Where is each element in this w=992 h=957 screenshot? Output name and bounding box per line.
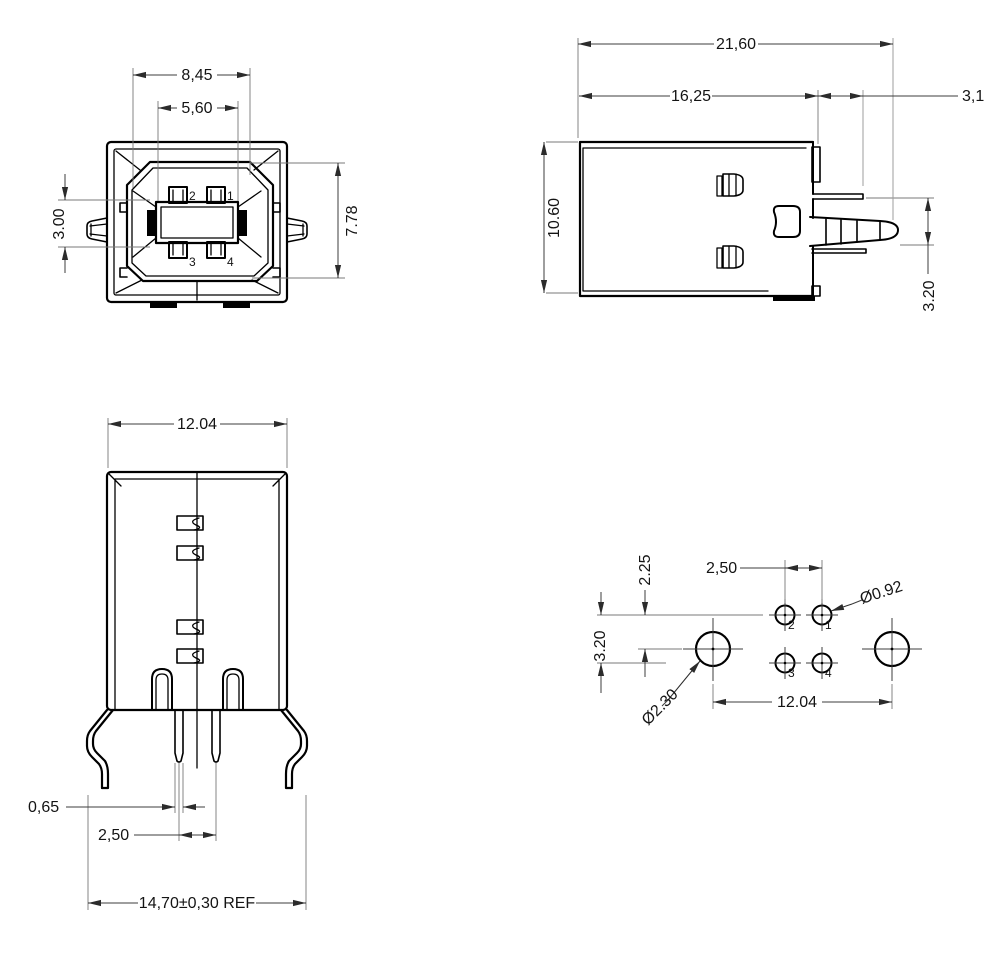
footprint-pin-label-2: 2 <box>788 618 795 632</box>
pin-hole-2 <box>769 599 801 631</box>
dim-front-shroud-height: 7.78 <box>344 205 361 236</box>
footprint-pin-label-3: 3 <box>788 666 795 680</box>
dim-footprint-mount-hole-dia: Ø2.30 <box>639 686 682 729</box>
side-view: 21,60 16,25 3,1 10.60 3.20 <box>544 36 984 312</box>
front-pin-label-3: 3 <box>189 255 196 269</box>
dim-side-latch-height: 3.20 <box>921 280 938 311</box>
dim-footprint-mount-pitch: 12.04 <box>777 694 817 711</box>
footprint-dimensions: 2.25 3.20 2,50 Ø0.92 Ø2.30 12.04 2 1 3 4 <box>592 554 905 729</box>
dim-footprint-pin-pitch: 2,50 <box>706 560 737 577</box>
pin-hole-3 <box>769 647 801 679</box>
rear-view-dimensions: 12.04 0,65 2,50 14,70±0,30 REF <box>28 416 306 912</box>
front-pin-label-2: 2 <box>189 189 196 203</box>
side-view-dimensions: 21,60 16,25 3,1 10.60 3.20 <box>544 36 984 312</box>
front-pin-label-4: 4 <box>227 255 234 269</box>
dim-front-side-height: 3.00 <box>51 208 68 239</box>
usb-b-connector-technical-drawing: 8,45 5,60 3.00 7.78 2 1 3 4 <box>0 0 992 957</box>
side-view-clip-lower <box>717 246 743 268</box>
mount-hole-right <box>862 618 922 681</box>
side-view-clip-upper <box>717 174 743 196</box>
footprint-pin-label-1: 1 <box>825 618 832 632</box>
dim-side-latch-offset: 3,1 <box>962 88 984 105</box>
footprint-holes <box>683 599 922 681</box>
dim-front-width-tongue: 5,60 <box>181 100 212 117</box>
rear-view: 12.04 0,65 2,50 14,70±0,30 REF <box>28 416 307 912</box>
dim-side-overall-length: 21,60 <box>716 36 756 53</box>
dim-rear-pin-pitch: 2,50 <box>98 827 129 844</box>
pin-hole-4 <box>806 647 838 679</box>
front-view-outline <box>87 142 307 308</box>
dim-footprint-row-spacing: 3.20 <box>592 630 609 661</box>
dim-side-height: 10.60 <box>546 198 563 238</box>
dim-side-body-length: 16,25 <box>671 88 711 105</box>
dim-rear-width: 12.04 <box>177 416 217 433</box>
dim-rear-pin-width: 0,65 <box>28 799 59 816</box>
footprint-pin-label-4: 4 <box>825 666 832 680</box>
mount-hole-left <box>683 618 743 681</box>
dim-footprint-row-offset: 2.25 <box>637 554 654 585</box>
pin-hole-1 <box>806 599 838 631</box>
dim-footprint-pin-hole-dia: Ø0.92 <box>858 578 905 608</box>
rear-view-outline <box>87 472 307 788</box>
dim-rear-leg-span: 14,70±0,30 REF <box>139 895 256 912</box>
dim-front-width-outer: 8,45 <box>181 67 212 84</box>
rear-view-clips <box>177 516 203 663</box>
front-view: 8,45 5,60 3.00 7.78 2 1 3 4 <box>51 67 361 308</box>
side-view-outline <box>580 142 898 301</box>
drawing-sheet: 8,45 5,60 3.00 7.78 2 1 3 4 <box>0 0 992 957</box>
front-pin-label-1: 1 <box>227 189 234 203</box>
pcb-footprint-view: 2.25 3.20 2,50 Ø0.92 Ø2.30 12.04 2 1 3 4 <box>592 554 922 729</box>
